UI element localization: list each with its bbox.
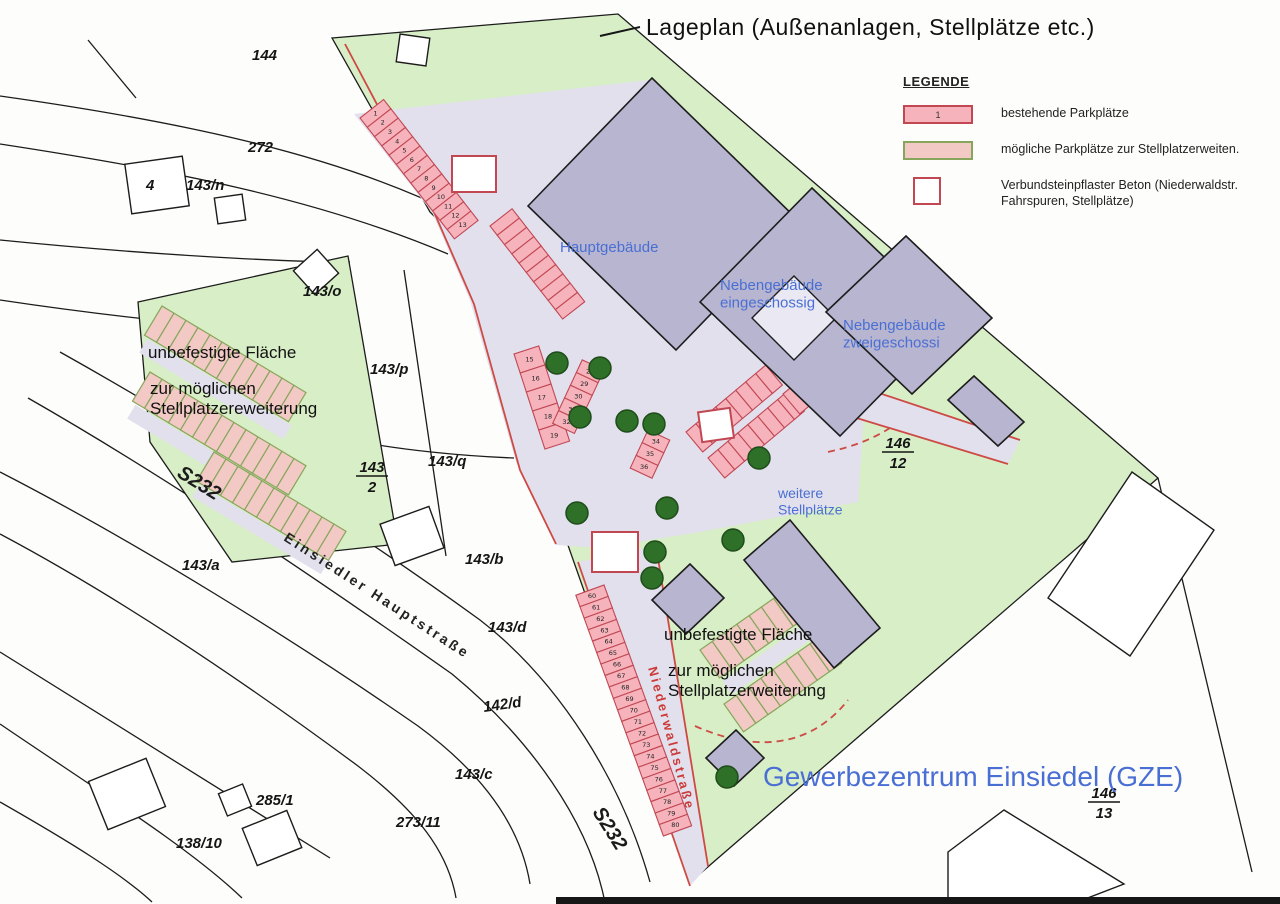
parcel-label: 143/d bbox=[488, 619, 527, 636]
legend-label: mögliche Parkplätze zur Stellplatzerweit… bbox=[1001, 141, 1239, 157]
stall-number: 18 bbox=[544, 413, 552, 421]
note-label: unbefestigte Fläche bbox=[148, 343, 296, 362]
neighbour-building bbox=[125, 156, 189, 214]
tree-icon bbox=[722, 529, 744, 551]
parcel-label: 4 bbox=[145, 177, 155, 194]
legend: LEGENDE 1 bestehende Parkplätze mögliche… bbox=[903, 74, 1263, 227]
stall-number: 10 bbox=[437, 193, 445, 201]
stall-number: 78 bbox=[663, 798, 671, 806]
tree-icon bbox=[641, 567, 663, 589]
parcel-label: 143/q bbox=[428, 453, 466, 470]
area-label: Nebengebäudeeingeschossig bbox=[720, 277, 823, 312]
stall-number: 19 bbox=[550, 432, 558, 440]
stall-number: 2 bbox=[381, 119, 385, 127]
stall-number: 11 bbox=[444, 202, 452, 210]
legend-swatch-wrap bbox=[903, 177, 975, 205]
tree-icon bbox=[546, 352, 568, 374]
stall-number: 13 bbox=[458, 221, 466, 229]
legend-label: Verbundsteinpflaster Beton (Niederwaldst… bbox=[1001, 177, 1238, 210]
legend-item-existing: 1 bestehende Parkplätze bbox=[903, 105, 1263, 124]
stall-number: 68 bbox=[621, 684, 629, 692]
road-edge bbox=[0, 534, 456, 898]
neighbour-building bbox=[396, 34, 430, 66]
fraction-numerator: 143 bbox=[359, 459, 385, 476]
stall-number: 30 bbox=[574, 393, 582, 401]
stall-number: 29 bbox=[580, 380, 588, 388]
stall-number: 3 bbox=[388, 128, 392, 136]
stall-number: 73 bbox=[642, 741, 650, 749]
legend-heading: LEGENDE bbox=[903, 74, 1263, 89]
neighbour-building bbox=[89, 758, 166, 829]
paver-square bbox=[698, 408, 734, 442]
stall-number: 71 bbox=[634, 718, 642, 726]
page-title: Lageplan (Außenanlagen, Stellplätze etc.… bbox=[646, 14, 1095, 41]
tree-icon bbox=[589, 357, 611, 379]
stall-number: 12 bbox=[451, 212, 459, 220]
tree-icon bbox=[569, 406, 591, 428]
neighbour-building bbox=[242, 810, 301, 865]
stall-number: 80 bbox=[671, 821, 679, 829]
stall-number: 34 bbox=[652, 437, 660, 445]
stall-number: 70 bbox=[630, 707, 638, 715]
stall-number: 6 bbox=[410, 156, 414, 164]
page-border-bottom bbox=[556, 897, 1280, 904]
stall-number: 35 bbox=[646, 450, 654, 458]
area-label: Nebengebäudezweigeschossi bbox=[843, 317, 946, 352]
legend-label: bestehende Parkplätze bbox=[1001, 105, 1129, 121]
parcel-label: 143/c bbox=[455, 766, 493, 783]
parcel-label: 143/o bbox=[303, 283, 341, 300]
tree-icon bbox=[716, 766, 738, 788]
stall-number: 69 bbox=[625, 695, 633, 703]
stall-number: 7 bbox=[417, 165, 421, 173]
area-label: Gewerbezentrum Einsiedel (GZE) bbox=[763, 761, 1183, 792]
stall-number: 66 bbox=[613, 661, 621, 669]
stall-number: 77 bbox=[659, 787, 667, 795]
fraction-denominator: 2 bbox=[367, 479, 377, 496]
legend-swatch-wrap: 1 bbox=[903, 105, 975, 124]
parcel-label: 143/a bbox=[182, 557, 220, 574]
legend-item-paver: Verbundsteinpflaster Beton (Niederwaldst… bbox=[903, 177, 1263, 210]
legend-item-possible: mögliche Parkplätze zur Stellplatzerweit… bbox=[903, 141, 1263, 160]
stall-number: 36 bbox=[640, 463, 648, 471]
parcel-label: 142/d bbox=[482, 694, 523, 716]
parcel-label: 272 bbox=[247, 139, 274, 156]
possible-parking-swatch bbox=[903, 141, 973, 160]
stall-number: 17 bbox=[538, 394, 546, 402]
legend-swatch-wrap bbox=[903, 141, 975, 160]
stall-number: 60 bbox=[588, 592, 596, 600]
stall-number: 61 bbox=[592, 603, 600, 611]
site-plan-page: 1234567891011121315161718192829303132343… bbox=[0, 0, 1280, 904]
note-label: unbefestigte Fläche bbox=[664, 625, 812, 644]
parcel-label: 273/11 bbox=[395, 814, 441, 831]
stall-number: 15 bbox=[525, 355, 533, 363]
paver-square bbox=[592, 532, 638, 572]
parcel-line bbox=[0, 240, 350, 262]
stall-number: 63 bbox=[600, 626, 608, 634]
stall-number: 65 bbox=[609, 649, 617, 657]
stall-number: 74 bbox=[646, 752, 654, 760]
stall-number: 72 bbox=[638, 729, 646, 737]
stall-number: 67 bbox=[617, 672, 625, 680]
area-label: Hauptgebäude bbox=[560, 239, 658, 256]
stall-number: 4 bbox=[395, 137, 399, 145]
neighbour-building bbox=[214, 194, 245, 224]
paver-swatch bbox=[913, 177, 941, 205]
stall-number: 64 bbox=[605, 638, 613, 646]
stall-number: 16 bbox=[531, 375, 539, 383]
tree-icon bbox=[748, 447, 770, 469]
parcel-label: 143/n bbox=[186, 177, 224, 194]
parcel-label: 285/1 bbox=[255, 792, 294, 809]
parcel-label: 144 bbox=[252, 47, 278, 64]
stall-number: 8 bbox=[424, 175, 428, 183]
neighbour-building bbox=[218, 784, 251, 816]
stall-number: 9 bbox=[432, 184, 436, 192]
parcel-label: 143/p bbox=[370, 361, 408, 378]
paver-square bbox=[452, 156, 496, 192]
fraction-denominator: 12 bbox=[890, 455, 907, 472]
tree-icon bbox=[656, 497, 678, 519]
fraction-denominator: 13 bbox=[1096, 805, 1113, 822]
existing-parking-swatch: 1 bbox=[903, 105, 973, 124]
parcel-label: 143/b bbox=[465, 551, 503, 568]
fraction-numerator: 146 bbox=[885, 435, 911, 452]
stall-number: 75 bbox=[650, 764, 658, 772]
parcel-label: 138/10 bbox=[176, 835, 223, 852]
tree-icon bbox=[644, 541, 666, 563]
stall-number: 79 bbox=[667, 810, 675, 818]
stall-number: 76 bbox=[655, 775, 663, 783]
tree-icon bbox=[566, 502, 588, 524]
tree-icon bbox=[643, 413, 665, 435]
neighbour-building-southeast bbox=[948, 810, 1124, 904]
parcel-line bbox=[88, 40, 136, 98]
tree-icon bbox=[616, 410, 638, 432]
stall-number: 62 bbox=[596, 615, 604, 623]
stall-number: 5 bbox=[402, 147, 406, 155]
stall-number: 1 bbox=[373, 109, 377, 117]
